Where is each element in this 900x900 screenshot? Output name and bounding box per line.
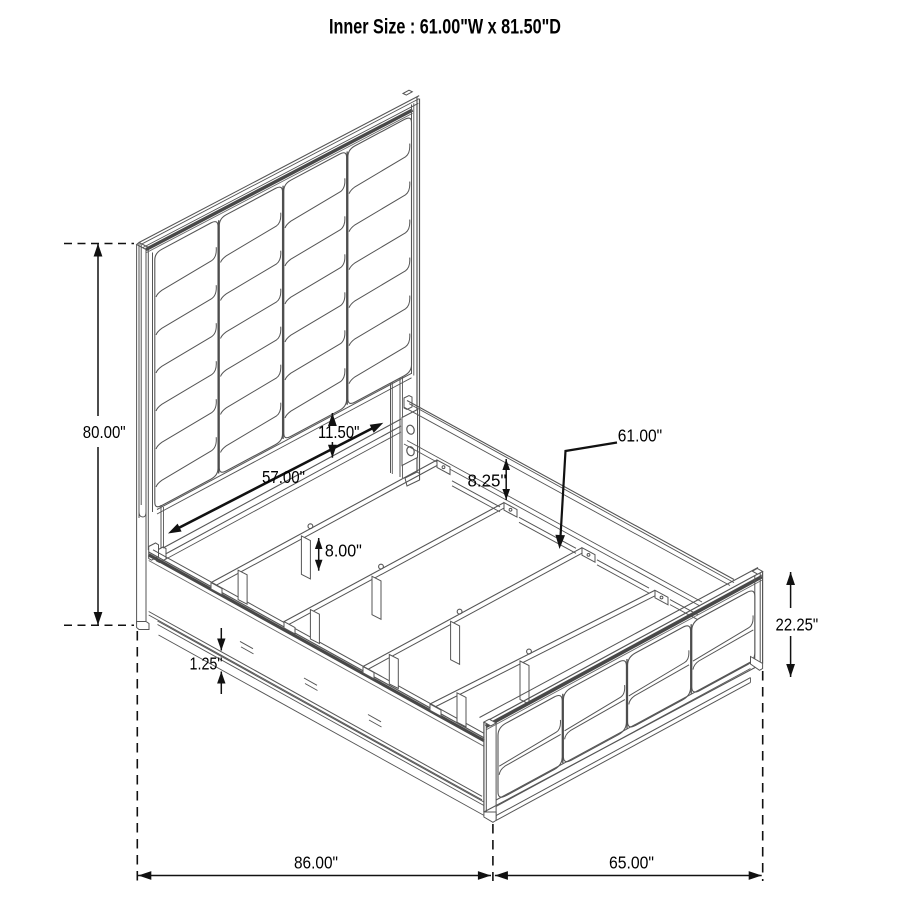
svg-text:86.00": 86.00" (294, 853, 338, 873)
svg-text:65.00": 65.00" (609, 853, 654, 873)
svg-text:Inner Size : 61.00"W x 81.50"D: Inner Size : 61.00"W x 81.50"D (329, 16, 561, 39)
svg-text:1.25": 1.25" (190, 654, 223, 674)
svg-text:80.00": 80.00" (83, 422, 126, 442)
svg-text:8.25": 8.25" (468, 471, 507, 491)
svg-text:22.25": 22.25" (776, 615, 819, 635)
svg-text:8.00": 8.00" (325, 541, 362, 561)
svg-text:57.00": 57.00" (262, 467, 305, 487)
svg-text:61.00": 61.00" (618, 426, 662, 446)
